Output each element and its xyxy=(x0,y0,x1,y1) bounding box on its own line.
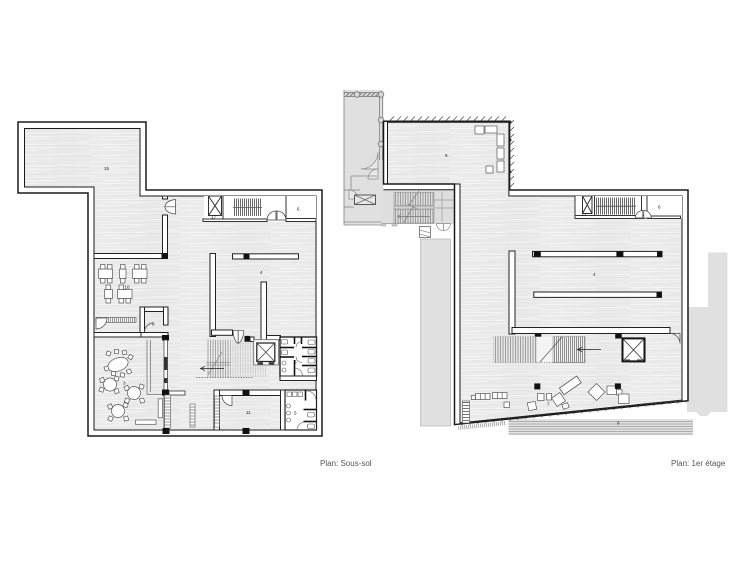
svg-text:Plan: 1er étage: Plan: 1er étage xyxy=(671,459,726,468)
svg-text:11: 11 xyxy=(246,410,251,415)
svg-text:17: 17 xyxy=(211,215,217,220)
svg-text:Plan: Sous-sol: Plan: Sous-sol xyxy=(320,459,372,468)
svg-text:17: 17 xyxy=(582,212,588,217)
svg-text:10: 10 xyxy=(125,285,131,290)
svg-text:15: 15 xyxy=(104,166,110,171)
